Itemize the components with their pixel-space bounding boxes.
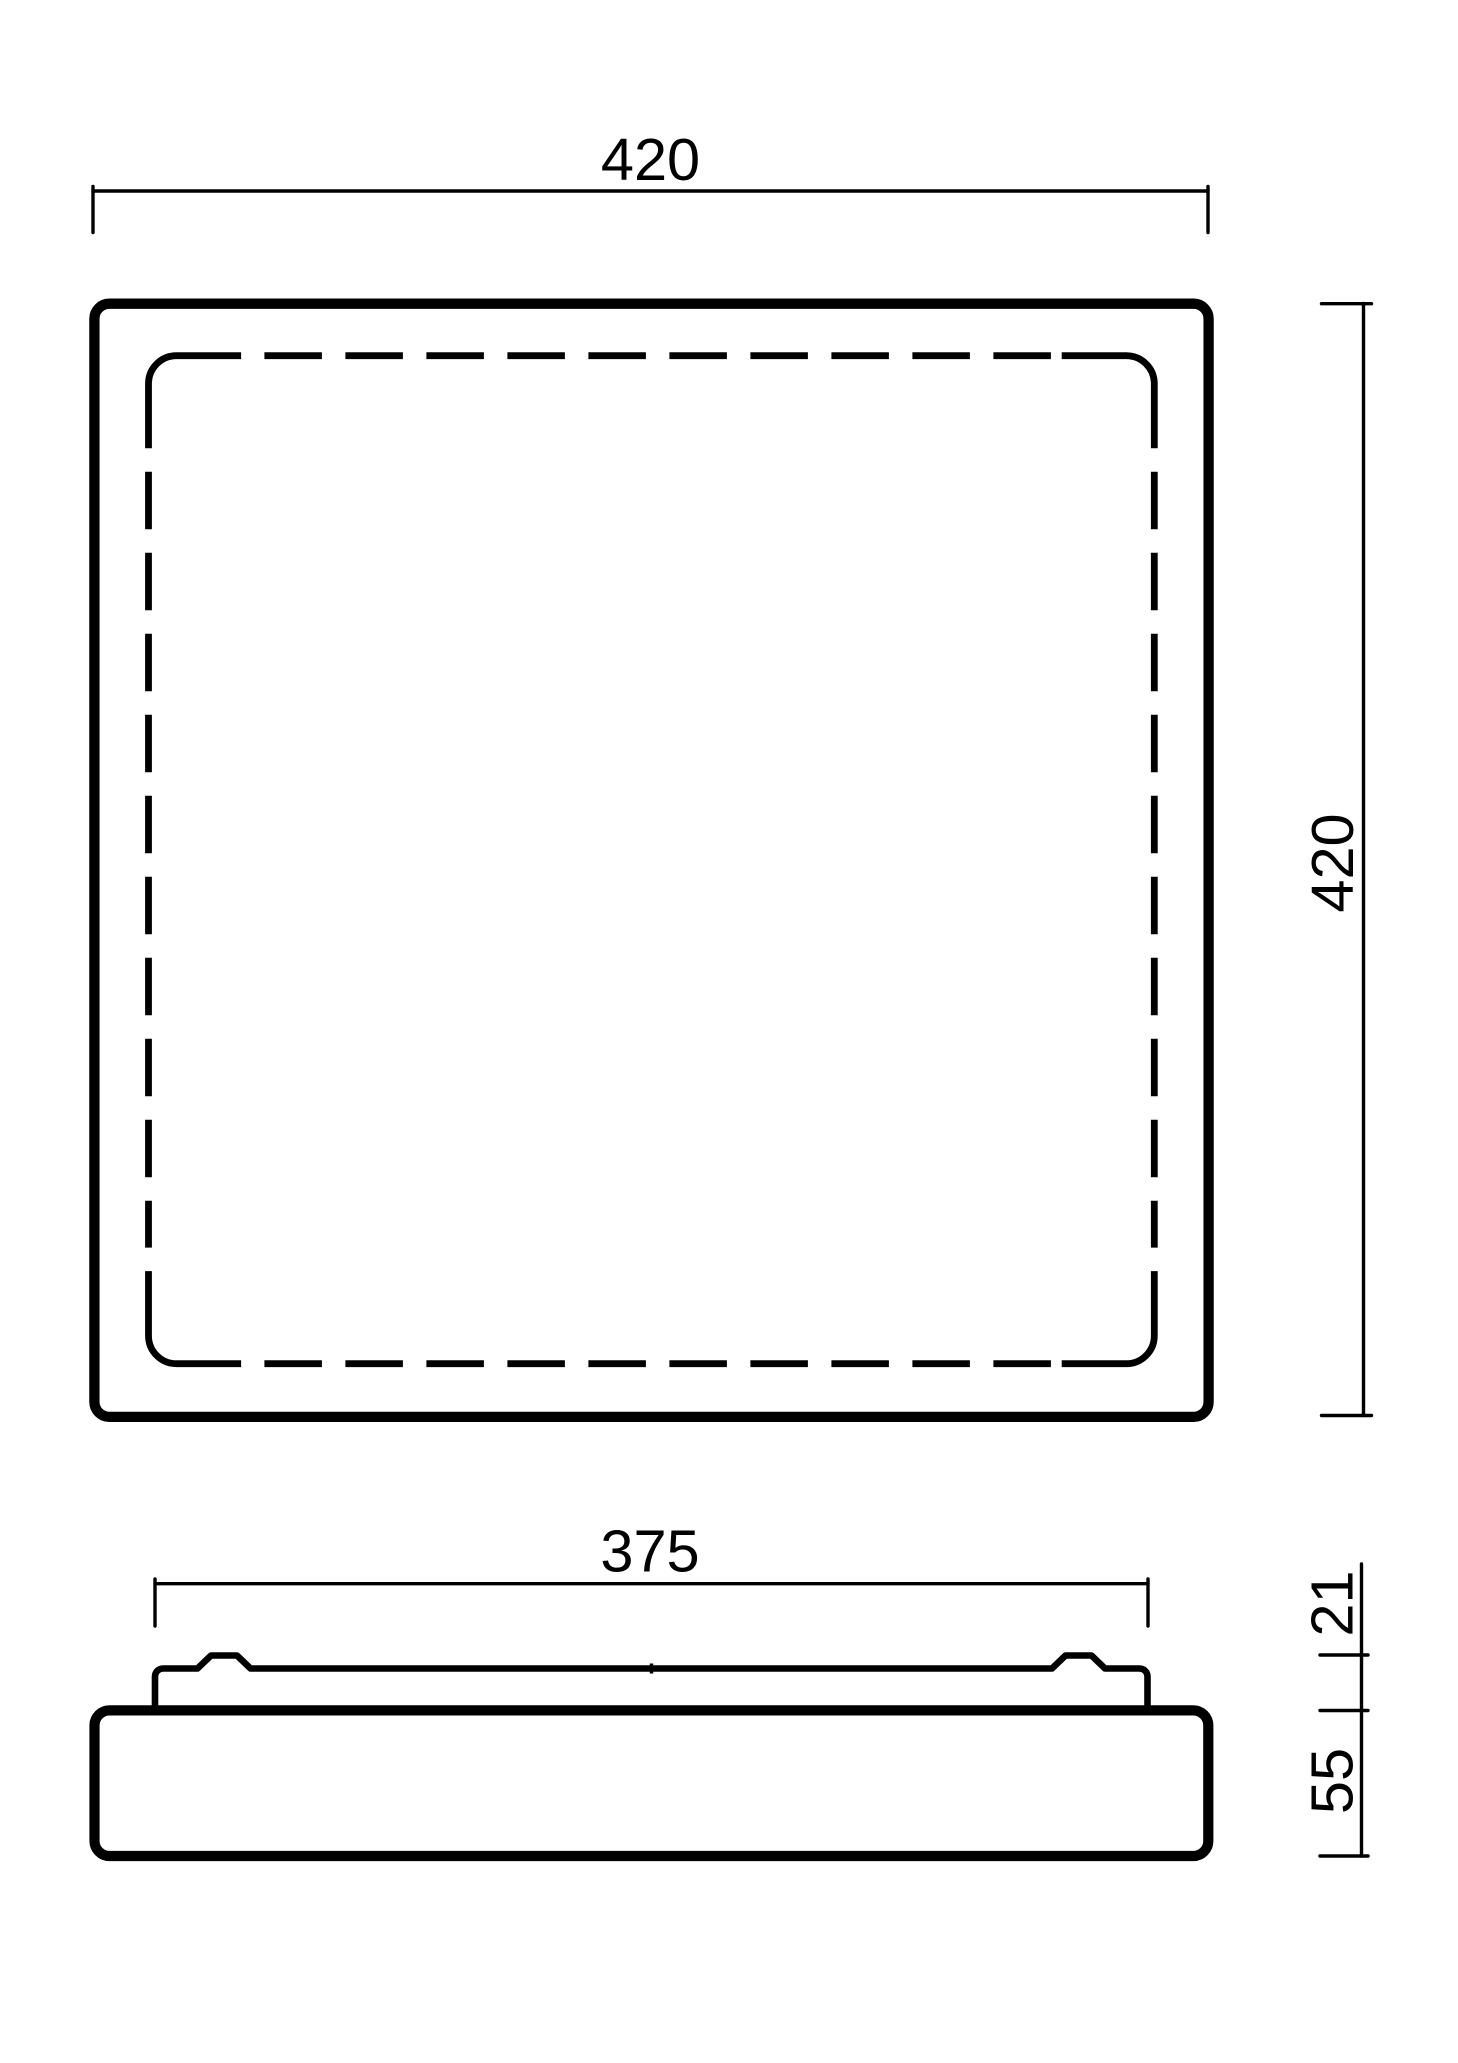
svg-text:420: 420: [601, 126, 700, 193]
svg-text:420: 420: [1299, 813, 1366, 912]
svg-text:21: 21: [1299, 1570, 1366, 1636]
svg-text:375: 375: [600, 1518, 699, 1585]
svg-text:55: 55: [1299, 1748, 1366, 1814]
